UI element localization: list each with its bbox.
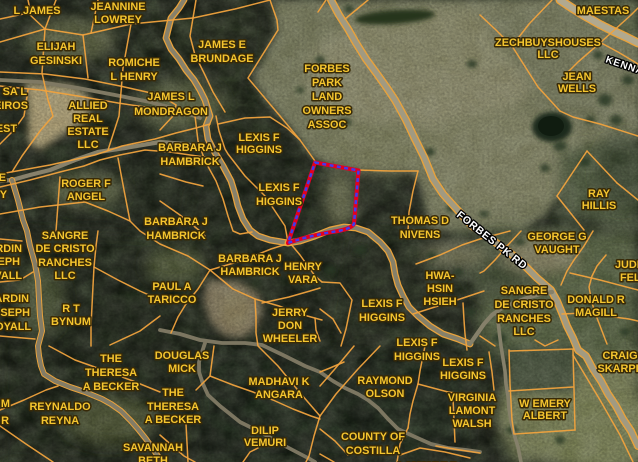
svg-text:HIGGINS: HIGGINS [394,351,440,363]
svg-text:LLC: LLC [77,139,98,151]
svg-text:HIGGINS: HIGGINS [359,312,405,324]
svg-text:WHEELER: WHEELER [263,333,318,345]
svg-text:MONDRAGON: MONDRAGON [134,106,208,118]
svg-text:HSIN: HSIN [427,283,453,295]
svg-text:HIGGINS: HIGGINS [236,144,282,156]
svg-text:DE CRISTO: DE CRISTO [494,299,554,311]
svg-text:REAL: REAL [73,113,103,125]
svg-text:BRUNDAGE: BRUNDAGE [191,53,254,65]
svg-text:SAVANNAH: SAVANNAH [123,442,183,454]
svg-text:Y: Y [0,189,8,201]
svg-text:A BECKER: A BECKER [83,381,140,393]
svg-text:LLC: LLC [54,270,75,282]
svg-text:RDIN: RDIN [0,243,22,255]
svg-text:ALBERT: ALBERT [523,410,568,422]
svg-text:HIGGINS: HIGGINS [256,196,302,208]
svg-text:W EMERY: W EMERY [519,398,571,410]
svg-text:HILLIS: HILLIS [582,200,617,212]
svg-text:SANGRE: SANGRE [501,285,548,297]
svg-text:HAMBRICK: HAMBRICK [160,156,219,168]
svg-text:R: R [1,415,9,427]
svg-text:L HENRY: L HENRY [110,71,158,83]
svg-text:E: E [0,172,6,184]
svg-text:JEAN: JEAN [562,71,591,83]
svg-text:LEXIS F: LEXIS F [258,182,299,194]
svg-text:LAMONT: LAMONT [449,405,496,417]
svg-text:BARBARA J: BARBARA J [144,216,208,228]
svg-text:SANGRE: SANGRE [42,230,89,242]
svg-text:ROMICHE: ROMICHE [108,57,159,69]
svg-text:ANGARA: ANGARA [255,389,303,401]
svg-text:LEXIS F: LEXIS F [396,337,437,349]
svg-text:EST: EST [0,123,17,135]
svg-text:MAGILL: MAGILL [575,307,617,319]
svg-text:OLSON: OLSON [366,388,405,400]
svg-text:DONALD R: DONALD R [567,294,625,306]
svg-text:HAMBRICK: HAMBRICK [146,230,205,242]
svg-text:ARDIN: ARDIN [0,293,29,305]
svg-text:THERESA: THERESA [147,401,199,413]
svg-text:MICK: MICK [168,363,196,375]
svg-text:JAMES L: JAMES L [147,91,195,103]
svg-text:GESINSKI: GESINSKI [30,55,82,67]
svg-text:JERRY: JERRY [272,307,309,319]
svg-text:A BECKER: A BECKER [145,414,202,426]
svg-text:MADHAVI K: MADHAVI K [249,376,310,388]
svg-text:R T: R T [62,303,80,315]
svg-text:LLC: LLC [513,326,534,338]
svg-text:ELIJAH: ELIJAH [37,41,76,53]
svg-text:COSTILLA: COSTILLA [346,445,401,457]
svg-text:HENRY: HENRY [284,261,322,273]
svg-text:THERESA: THERESA [85,367,137,379]
svg-text:PAUL A: PAUL A [152,281,191,293]
svg-text:WELLS: WELLS [558,83,596,95]
svg-text:JEANNINE: JEANNINE [90,1,145,13]
svg-text:BYNUM: BYNUM [51,316,91,328]
svg-text:LAND: LAND [312,91,342,103]
svg-text:BARBARA J: BARBARA J [218,253,282,265]
svg-text:JOSEPH: JOSEPH [0,307,30,319]
svg-text:LEXIS F: LEXIS F [238,132,279,144]
svg-text:VAUGHT: VAUGHT [534,244,580,256]
svg-text:HIGGINS: HIGGINS [440,370,486,382]
svg-text:TARICCO: TARICCO [148,294,197,306]
svg-text:RANCHES: RANCHES [497,313,551,325]
svg-text:HAMBRICK: HAMBRICK [220,266,279,278]
svg-text:VALL: VALL [0,270,22,282]
svg-text:RAY: RAY [588,188,611,200]
svg-text:ALLIED: ALLIED [68,100,107,112]
svg-text:NIVENS: NIVENS [400,229,441,241]
svg-text:THE: THE [162,387,184,399]
svg-text:HWA-: HWA- [425,270,454,282]
svg-text:RAYMOND: RAYMOND [357,375,412,387]
svg-text:SA L: SA L [3,86,28,98]
svg-text:LEXIS F: LEXIS F [361,298,402,310]
svg-text:PARK: PARK [312,77,342,89]
svg-text:VEMURI: VEMURI [244,437,286,449]
svg-text:BARBARA J: BARBARA J [158,142,222,154]
svg-text:WALSH: WALSH [452,418,491,430]
svg-text:GEORGE G: GEORGE G [527,231,586,243]
svg-text:ASSOC: ASSOC [308,119,347,131]
svg-text:DOUGLAS: DOUGLAS [155,350,209,362]
svg-text:ANGEL: ANGEL [67,191,105,203]
svg-text:ROGER F: ROGER F [61,178,111,190]
svg-text:ESTATE: ESTATE [67,126,108,138]
svg-text:LLC: LLC [537,49,558,61]
svg-text:DILIP: DILIP [251,425,279,437]
svg-text:OYALL: OYALL [0,321,31,333]
svg-text:FELI: FELI [620,272,638,284]
svg-text:DON: DON [278,320,302,332]
svg-text:EPH: EPH [0,256,20,268]
svg-text:LOWREY: LOWREY [94,14,143,26]
svg-text:LEXIS F: LEXIS F [442,357,483,369]
svg-text:SKARPIA: SKARPIA [597,363,638,375]
svg-text:HSIEH: HSIEH [423,296,456,308]
svg-text:JUDI: JUDI [615,259,638,271]
svg-text:L JAMES: L JAMES [13,5,60,17]
svg-text:THE: THE [100,353,122,365]
svg-text:BETH: BETH [138,455,168,462]
svg-text:ZECHBUYSHOUSES: ZECHBUYSHOUSES [495,37,601,49]
svg-text:VARA: VARA [288,274,318,286]
svg-text:VIRGINIA: VIRGINIA [448,392,497,404]
svg-text:EIROS: EIROS [0,100,28,112]
svg-text:THOMAS D: THOMAS D [391,215,449,227]
svg-text:FORBES: FORBES [304,63,349,75]
svg-text:JAMES E: JAMES E [198,39,246,51]
svg-text:RANCHES: RANCHES [38,257,92,269]
svg-text:REYNA: REYNA [41,415,79,427]
svg-text:DE CRISTO: DE CRISTO [35,243,95,255]
svg-text:CRAIG: CRAIG [602,350,637,362]
svg-text:M: M [1,398,10,410]
svg-text:REYNALDO: REYNALDO [29,401,91,413]
svg-text:COUNTY OF: COUNTY OF [341,431,405,443]
svg-text:MAESTAS: MAESTAS [577,5,629,17]
svg-text:OWNERS: OWNERS [302,105,351,117]
